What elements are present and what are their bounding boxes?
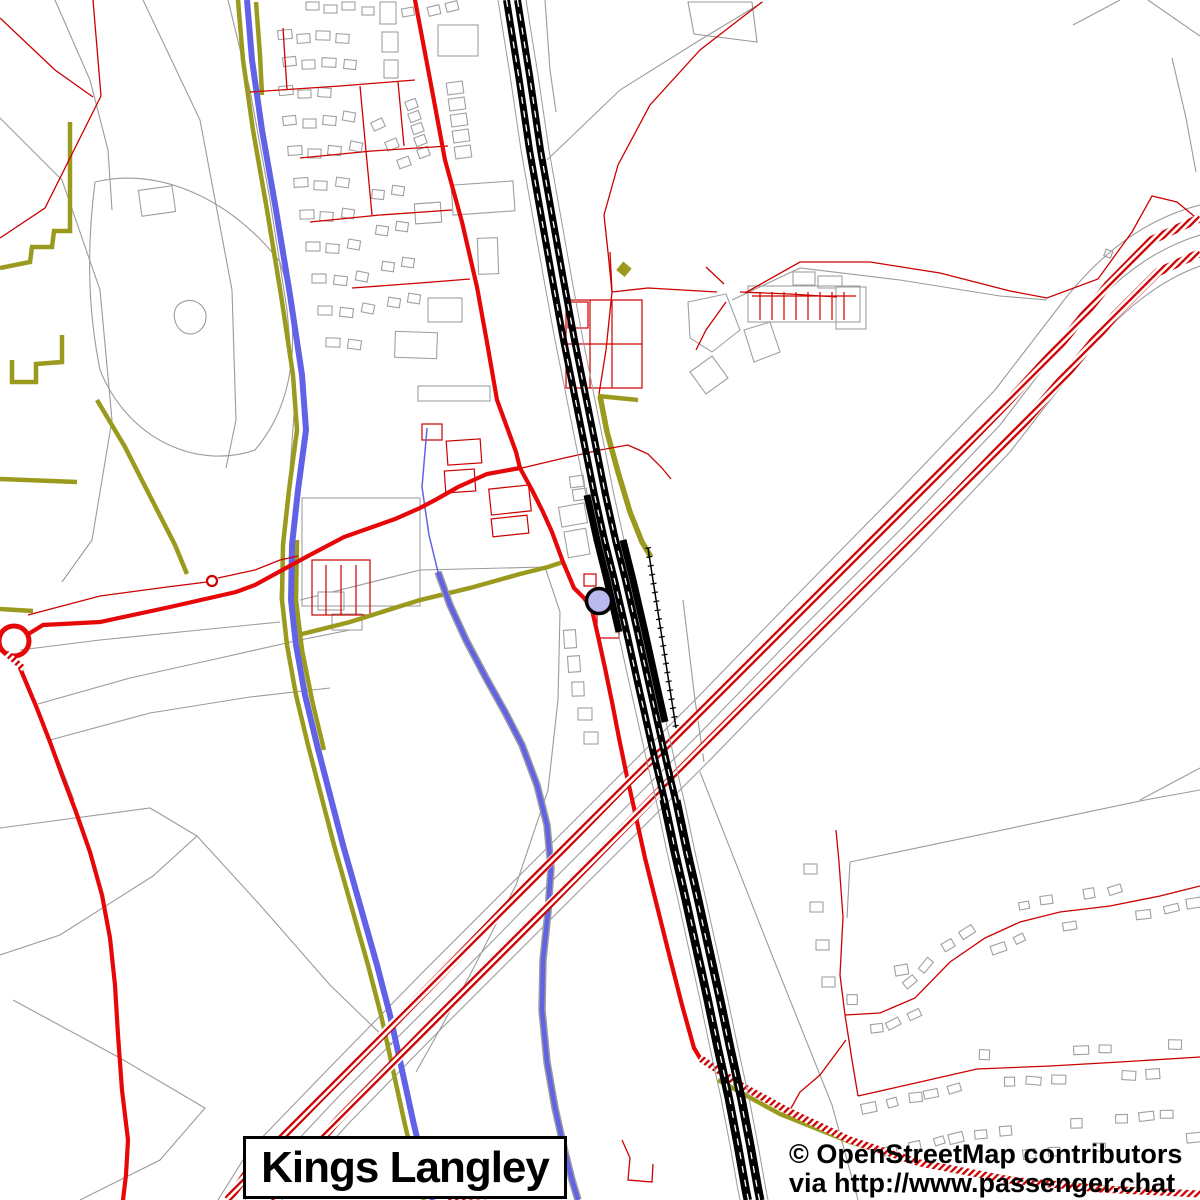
map-canvas[interactable] (0, 0, 1200, 1200)
place-label: Kings Langley (261, 1143, 549, 1193)
building-footprints-irregular (302, 286, 860, 606)
map-svg (0, 0, 1200, 1200)
roundabout (0, 626, 29, 656)
attribution-line1: © OpenStreetMap contributors (789, 1140, 1182, 1169)
railway-line (498, 0, 768, 1200)
motorway-dual-carriageway (228, 218, 1200, 1200)
railway-station-marker[interactable] (587, 589, 612, 614)
river-casing (438, 572, 578, 1200)
attribution-line2: via http://www.passenger.chat (789, 1169, 1182, 1198)
place-label-box: Kings Langley (243, 1136, 567, 1199)
map-attribution: © OpenStreetMap contributors via http://… (789, 1140, 1182, 1198)
waterways (238, 0, 578, 1200)
footpaths (0, 122, 1200, 1193)
map-screenshot: Kings Langley © OpenStreetMap contributo… (0, 0, 1200, 1200)
mini-roundabout (207, 576, 217, 586)
